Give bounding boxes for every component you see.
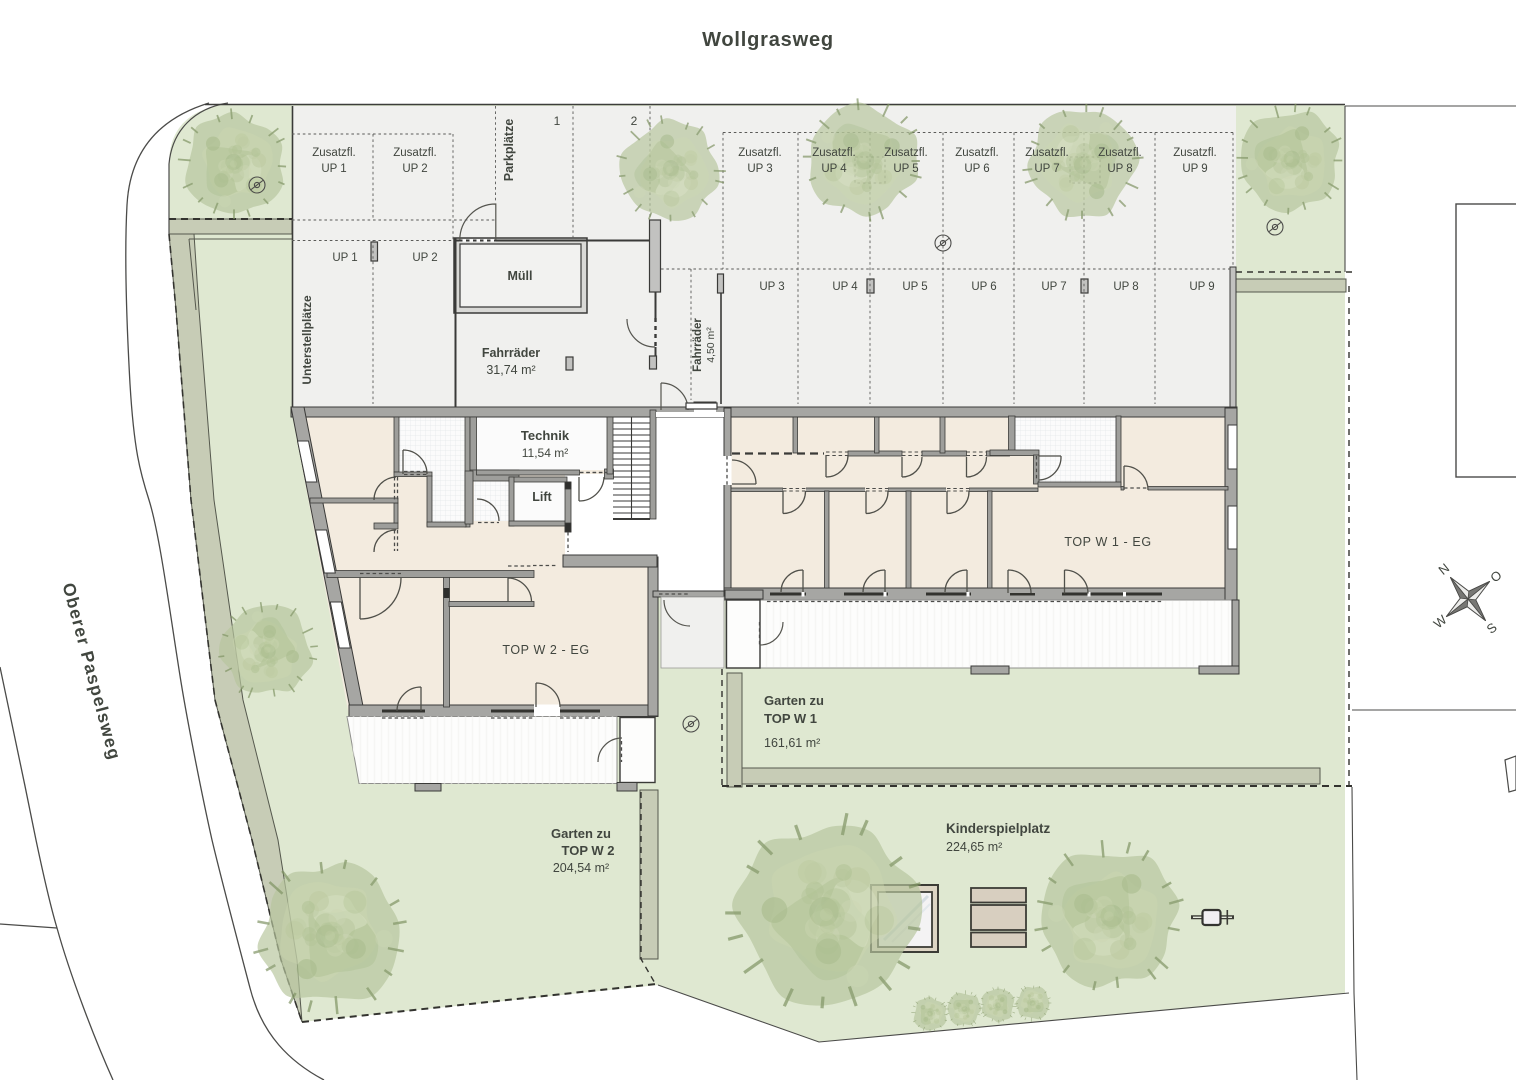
svg-text:UP 9: UP 9 bbox=[1189, 281, 1214, 293]
svg-text:UP 4: UP 4 bbox=[832, 281, 858, 293]
svg-text:UP 6: UP 6 bbox=[971, 281, 996, 293]
svg-text:Garten zu: Garten zu bbox=[551, 826, 611, 841]
svg-text:Lift: Lift bbox=[532, 490, 552, 504]
svg-text:31,74 m²: 31,74 m² bbox=[486, 363, 535, 377]
svg-text:Kinderspielplatz: Kinderspielplatz bbox=[946, 821, 1051, 836]
svg-text:Wollgrasweg: Wollgrasweg bbox=[702, 29, 834, 51]
svg-text:TOP W 2 - EG: TOP W 2 - EG bbox=[502, 643, 589, 657]
svg-text:2: 2 bbox=[631, 114, 638, 128]
svg-text:TOP W 1 - EG: TOP W 1 - EG bbox=[1064, 535, 1151, 549]
svg-text:UP 7: UP 7 bbox=[1041, 281, 1066, 293]
svg-text:Garten zu: Garten zu bbox=[764, 693, 824, 708]
svg-text:Fahrräder: Fahrräder bbox=[692, 318, 704, 372]
svg-text:Unterstellplätze: Unterstellplätze bbox=[300, 295, 314, 385]
svg-text:UP 5: UP 5 bbox=[902, 281, 927, 293]
svg-text:Technik: Technik bbox=[521, 428, 570, 443]
svg-text:UP 8: UP 8 bbox=[1113, 281, 1138, 293]
svg-text:UP 1: UP 1 bbox=[332, 252, 357, 264]
svg-text:204,54 m²: 204,54 m² bbox=[553, 861, 609, 875]
svg-text:UP 2: UP 2 bbox=[412, 252, 437, 264]
svg-text:11,54 m²: 11,54 m² bbox=[522, 446, 568, 460]
svg-text:1: 1 bbox=[554, 114, 561, 128]
svg-text:TOP W 2: TOP W 2 bbox=[562, 843, 615, 858]
svg-text:Fahrräder: Fahrräder bbox=[482, 346, 540, 360]
svg-text:161,61 m²: 161,61 m² bbox=[764, 736, 820, 750]
svg-text:224,65 m²: 224,65 m² bbox=[946, 840, 1002, 854]
svg-text:Parkplätze: Parkplätze bbox=[502, 119, 516, 182]
svg-text:4,50 m²: 4,50 m² bbox=[705, 327, 717, 363]
svg-text:TOP W 1: TOP W 1 bbox=[764, 711, 817, 726]
svg-text:UP 3: UP 3 bbox=[759, 281, 784, 293]
svg-text:Müll: Müll bbox=[508, 269, 533, 283]
